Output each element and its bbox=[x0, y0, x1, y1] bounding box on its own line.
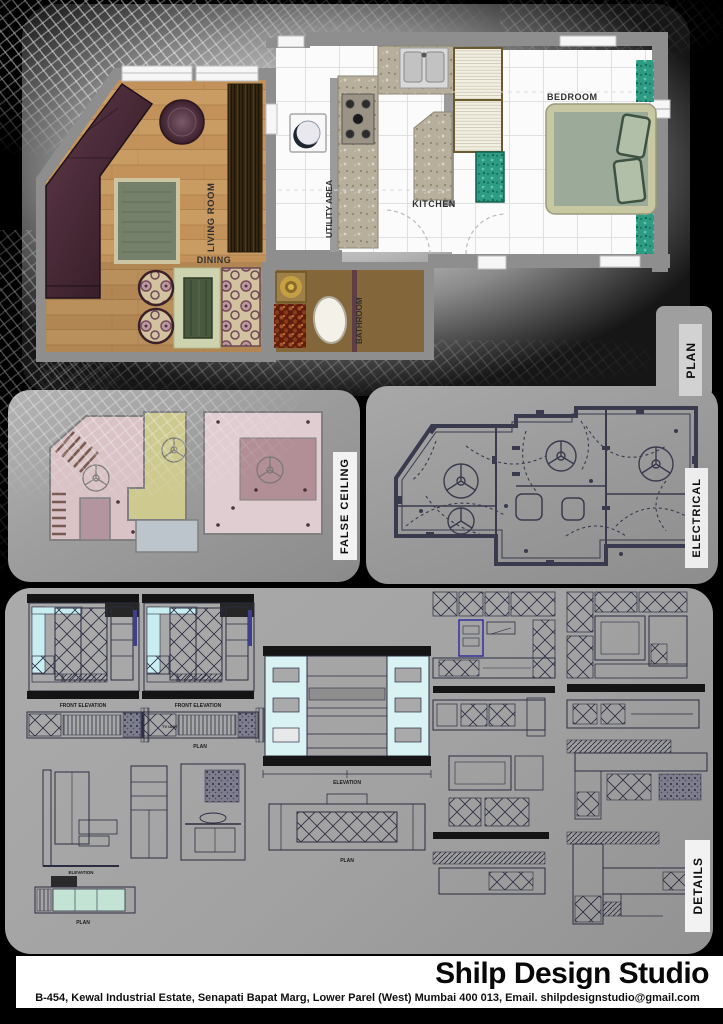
tv-unit-elevation: ELEVATION bbox=[263, 646, 431, 786]
caption-front-elevation-1: FRONT ELEVATION bbox=[60, 703, 107, 709]
electrical-walls bbox=[396, 408, 696, 564]
wardrobe-plan-2: TV UNIT PLAN bbox=[142, 708, 264, 750]
caption-plan-2: PLAN bbox=[193, 744, 207, 750]
dining-furniture bbox=[139, 268, 260, 348]
caption-tv-unit: TV UNIT bbox=[162, 724, 178, 729]
false-ceiling-plan bbox=[8, 390, 360, 582]
label-bathroom: BATHROOM bbox=[355, 297, 364, 344]
caption-plan-tv: PLAN bbox=[340, 858, 354, 864]
tv-unit-plan: PLAN bbox=[269, 794, 425, 864]
studio-name: Shilp Design Studio bbox=[435, 957, 709, 991]
kitchen-layout-plan-1 bbox=[567, 740, 707, 819]
electrical-panel bbox=[366, 386, 718, 584]
kitchen-plan-center bbox=[433, 852, 545, 894]
kitchen-plan-b bbox=[567, 700, 699, 728]
kitchen-plan-a bbox=[433, 698, 545, 736]
electrical-plan bbox=[366, 386, 718, 584]
tab-details-label: DETAILS bbox=[691, 857, 705, 914]
floor-plan: LIVING ROOM DINING KITCHEN BEDROOM BATHR… bbox=[0, 0, 723, 400]
studio-address: B-454, Kewal Industrial Estate, Senapati… bbox=[16, 992, 719, 1004]
tab-plan[interactable]: PLAN bbox=[679, 324, 702, 396]
kitchen-detail-center bbox=[433, 756, 549, 839]
label-bedroom: BEDROOM bbox=[547, 92, 598, 102]
kitchen-elevation-b bbox=[567, 592, 705, 692]
tab-false-ceiling-label: FALSE CEILING bbox=[339, 458, 351, 554]
footer-titleblock: Shilp Design Studio B-454, Kewal Industr… bbox=[16, 956, 723, 1008]
caption-elevation-side: ELEVATION bbox=[68, 870, 93, 875]
vanity-elevation bbox=[181, 764, 245, 860]
wardrobe-side-elevation: ELEVATION bbox=[43, 770, 119, 875]
details-panel: FRONT ELEVATION FRONT ELEVATION TV UNIT … bbox=[5, 588, 713, 954]
label-living-room: LIVING ROOM bbox=[206, 183, 217, 252]
tab-electrical-label: ELECTRICAL bbox=[691, 478, 703, 558]
presentation-board: LIVING ROOM DINING KITCHEN BEDROOM BATHR… bbox=[0, 0, 723, 1024]
kitchen-elevation-a bbox=[433, 592, 555, 693]
tab-false-ceiling[interactable]: FALSE CEILING bbox=[333, 452, 357, 560]
wardrobe-front-elevation-2: FRONT ELEVATION bbox=[142, 594, 254, 709]
details-drawings: FRONT ELEVATION FRONT ELEVATION TV UNIT … bbox=[5, 588, 713, 954]
tab-details[interactable]: DETAILS bbox=[685, 840, 710, 932]
wardrobe-front-elevation-1: FRONT ELEVATION bbox=[27, 594, 139, 709]
label-dining: DINING bbox=[197, 255, 232, 265]
counter-plan-green: PLAN bbox=[35, 876, 135, 926]
caption-front-elevation-2: FRONT ELEVATION bbox=[175, 703, 222, 709]
tab-plan-label: PLAN bbox=[684, 342, 698, 379]
false-ceiling-panel bbox=[8, 390, 360, 582]
label-utility-area: UTILITY AREA bbox=[324, 180, 334, 238]
shelf-unit-elevation bbox=[131, 766, 167, 858]
wardrobe-plan-1 bbox=[27, 708, 149, 742]
electrical-wiring bbox=[406, 421, 686, 536]
tab-electrical[interactable]: ELECTRICAL bbox=[685, 468, 708, 568]
electrical-fans bbox=[444, 441, 673, 534]
caption-plan-green: PLAN bbox=[76, 920, 90, 926]
electrical-symbols bbox=[398, 410, 696, 564]
caption-elevation-tv: ELEVATION bbox=[333, 780, 361, 786]
label-kitchen: KITCHEN bbox=[412, 199, 456, 209]
